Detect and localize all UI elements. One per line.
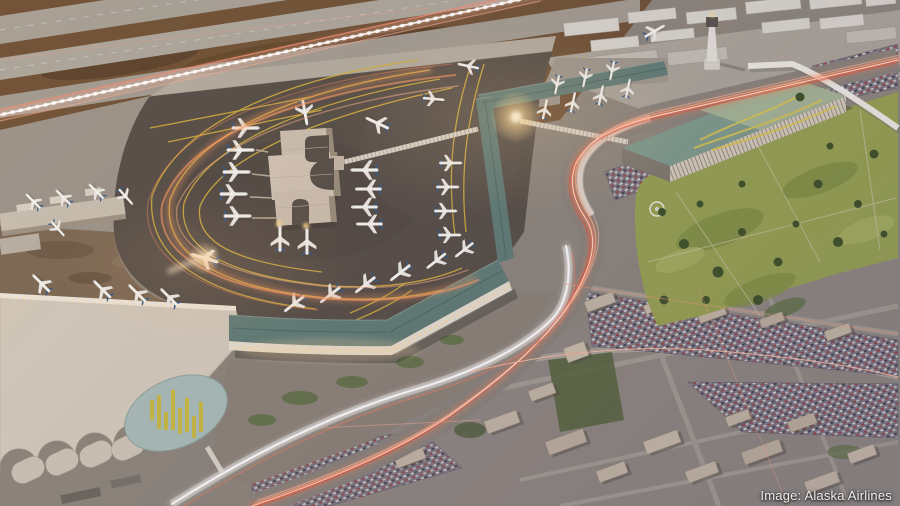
image-credit: Image: Alaska Airlines	[760, 488, 892, 503]
curb-glow	[240, 338, 420, 362]
gate-glow	[303, 223, 309, 229]
north-courtyard	[305, 135, 329, 163]
south-courtyard	[292, 199, 309, 225]
rendering-canvas	[0, 0, 900, 506]
airport-rendering: Image: Alaska Airlines	[0, 0, 900, 506]
roof-trees	[796, 93, 805, 102]
tower-beacon	[710, 13, 714, 17]
